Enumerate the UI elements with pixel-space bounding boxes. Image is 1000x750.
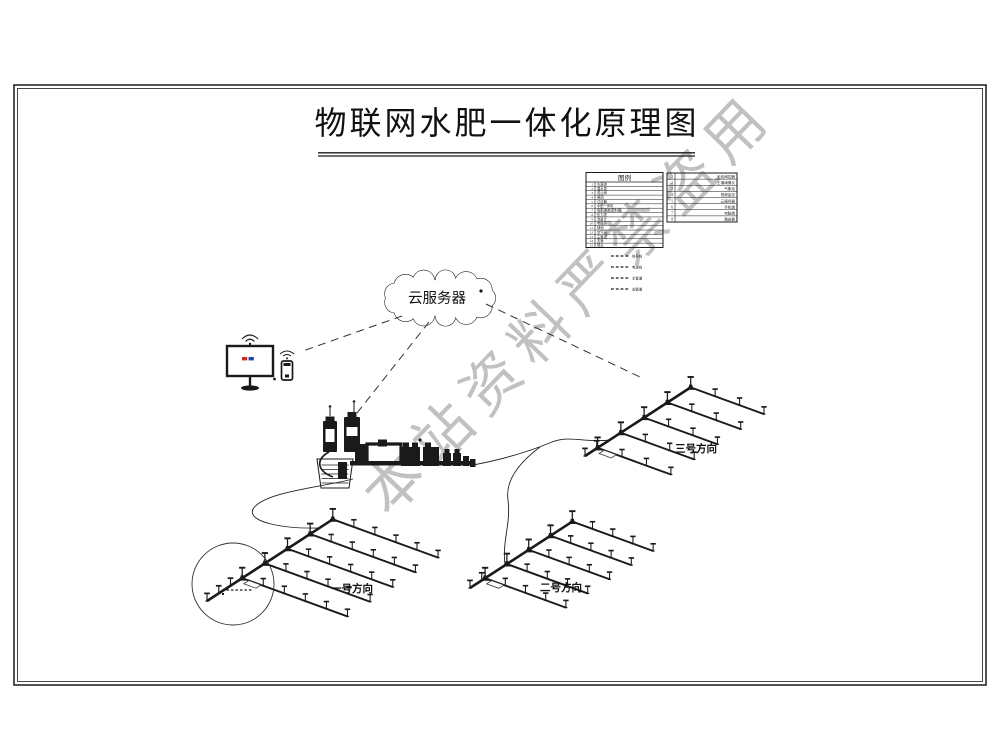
lateral-pipe (333, 519, 438, 557)
line-legend-label: 信号线 (632, 254, 643, 259)
link-cloud-to-field (486, 304, 640, 377)
wifi-icon (286, 357, 288, 359)
link-cloud-to-controller (357, 322, 429, 413)
legend-row-label: 主管道 (597, 234, 608, 239)
line-legend-label: 电源线 (632, 265, 643, 270)
filter-unit (401, 447, 420, 466)
lateral-pipe (288, 549, 393, 587)
legend-row-label: 土壤墒情仪 (717, 180, 735, 185)
controller-window (347, 427, 358, 436)
tank-window (326, 429, 335, 442)
monitor-screen (227, 346, 273, 376)
legend-tables: 图例1水源池2潜水泵3逆止阀4闸阀5过滤器6水肥一体机7吸肥通道(肥料桶)8压力… (586, 173, 737, 292)
legend-row-number: 8 (671, 218, 673, 222)
lateral-pipe (265, 563, 370, 601)
legend-row-number: 1 (671, 175, 673, 179)
valve-unit (463, 456, 469, 466)
legend-row-label: 水源池 (597, 181, 608, 186)
filter-cap (403, 443, 409, 448)
sprinkler-field-1 (204, 509, 441, 617)
tank-cap (326, 417, 335, 422)
valve-cap (445, 449, 450, 453)
submersible-pump (338, 462, 347, 479)
wifi-icon (246, 339, 255, 341)
legend-row-label: 潜水泵 (597, 186, 608, 191)
legend-row-label: 压力表 (597, 212, 608, 217)
legend-row-label: 水肥一体机 (597, 203, 614, 208)
wifi-icon (242, 335, 258, 339)
legend-row-label: 喷头 (597, 243, 604, 248)
legend-row-label: 无线阀控器 (717, 174, 735, 179)
legend-row-label: 球阀 (597, 225, 604, 230)
filter-cap (412, 443, 418, 448)
controller-cap (348, 412, 357, 418)
pressure-gauge (418, 438, 421, 441)
legend-row-number: 7 (671, 212, 673, 216)
line-legend-label: 支管道 (632, 287, 643, 292)
callout-dot (222, 593, 224, 595)
lateral-pipe (667, 402, 740, 429)
frame-inner (18, 89, 983, 682)
booster-pump (355, 449, 368, 462)
cloud-server-label: 云服务器 (408, 290, 466, 307)
valve-box-marker (487, 581, 504, 589)
legend-header: 图例 (618, 173, 631, 182)
legend-row-label: 过滤器 (597, 199, 608, 204)
legend-row-label: 逆止阀 (597, 190, 607, 195)
field-1-label: 一号方向 (331, 582, 373, 595)
phone-button (285, 375, 289, 378)
legend-row-label: 空气阀 (597, 229, 607, 234)
legend-row-number: 2 (671, 181, 673, 185)
legend-row-label: 流量计 (597, 216, 608, 221)
screen-red-bar (242, 357, 247, 360)
bypass-valve (378, 440, 387, 447)
legend-row-label: 电磁阀 (597, 221, 607, 226)
legend-row-label: 闸阀 (597, 195, 604, 200)
lateral-pipe (691, 387, 764, 414)
filter-cap (425, 443, 431, 448)
legend-row-label: 支管 (597, 238, 604, 243)
filter-unit (423, 447, 439, 466)
valve-box-marker (599, 450, 616, 458)
lateral-pipe (644, 418, 717, 445)
lateral-pipe (310, 534, 415, 572)
drawing-page: 本站资料严禁盗用 图例1水源池2潜水泵3逆止阀4闸阀5过滤器6水肥一体机7吸肥通… (0, 0, 1000, 750)
valve-cap (455, 449, 460, 453)
field-2-label: 二号方向 (540, 581, 582, 594)
monitor-dot (273, 378, 276, 381)
fertigation-equipment (317, 400, 476, 488)
sprinkler-fields (204, 377, 767, 616)
valve-unit (453, 453, 461, 466)
legend-row-number: 4 (671, 193, 673, 197)
frame (14, 85, 986, 685)
legend-row-label: 电脑端 (724, 211, 735, 216)
link-cloud-to-pc (300, 316, 402, 352)
legend-row-number: 3 (671, 187, 673, 191)
legend-row-label: 路由器 (724, 217, 735, 222)
labels-layer: 物联网水肥一体化原理图 云服务器 一号方向 二号方向 三号方向 (314, 105, 717, 595)
frame-outer (14, 85, 986, 685)
page-title: 物联网水肥一体化原理图 (314, 105, 699, 141)
screen-blue-bar (249, 357, 254, 360)
cloud-dot (479, 289, 482, 292)
diagram-canvas: 图例1水源池2潜水泵3逆止阀4闸阀5过滤器6水肥一体机7吸肥通道(肥料桶)8压力… (0, 0, 1000, 750)
wifi-icon (280, 351, 294, 354)
valve-box-marker (244, 581, 261, 589)
valve-unit (443, 453, 451, 466)
field-3-label: 三号方向 (675, 442, 717, 455)
legend-row-number: 15 (590, 244, 594, 248)
antenna-tip (353, 400, 356, 403)
water-basin (317, 459, 353, 488)
wifi-icon (283, 355, 291, 357)
sprinkler-field-3 (582, 377, 767, 475)
phone-top-band (284, 363, 291, 366)
legend-row-label: 手机端 (724, 204, 735, 209)
pump-motor (358, 444, 366, 449)
line-legend-label: 主管道 (632, 276, 643, 281)
monitor-base (241, 385, 259, 390)
bypass-pipe (367, 444, 401, 463)
legend-row-label: 吸肥通道(肥料桶) (597, 208, 622, 213)
outlet-valve (470, 459, 476, 467)
legend-row-label: 气象站 (724, 186, 735, 191)
legend-row-number: 5 (671, 199, 673, 203)
legend-row-number: 6 (671, 205, 673, 209)
antenna-tip (329, 405, 332, 408)
client-devices (227, 335, 294, 391)
legend-row-label: 视频监控 (721, 192, 736, 197)
legend-row-label: 云服务器 (721, 198, 736, 203)
